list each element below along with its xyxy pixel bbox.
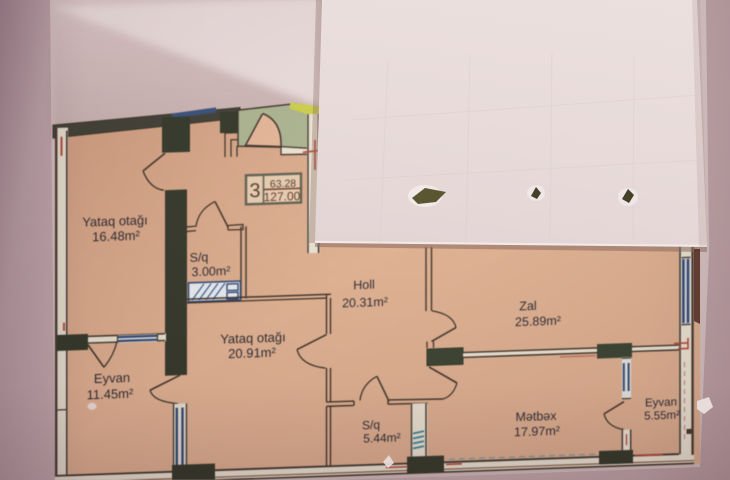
svg-text:Zal: Zal [519, 299, 536, 314]
svg-text:16.48m²: 16.48m² [92, 228, 140, 245]
svg-text:S/q: S/q [362, 418, 380, 433]
svg-text:5.44m²: 5.44m² [363, 430, 400, 445]
svg-text:20.31m²: 20.31m² [342, 295, 388, 311]
svg-text:Yataq otağı: Yataq otağı [220, 329, 286, 346]
svg-text:11.45m²: 11.45m² [87, 386, 134, 403]
svg-text:Holl: Holl [353, 278, 375, 293]
svg-text:17.97m²: 17.97m² [514, 424, 560, 440]
svg-text:Eyvan: Eyvan [645, 396, 677, 409]
svg-text:5.55m²: 5.55m² [644, 409, 680, 422]
svg-text:3: 3 [249, 180, 260, 202]
svg-text:20.91m²: 20.91m² [228, 345, 276, 362]
svg-text:Mətbəx: Mətbəx [516, 409, 558, 424]
svg-text:Eyvan: Eyvan [94, 370, 130, 386]
svg-text:127.00: 127.00 [264, 189, 301, 204]
svg-text:25.89m²: 25.89m² [515, 314, 561, 330]
svg-text:3.00m²: 3.00m² [192, 264, 231, 279]
svg-text:S/q: S/q [190, 250, 209, 265]
